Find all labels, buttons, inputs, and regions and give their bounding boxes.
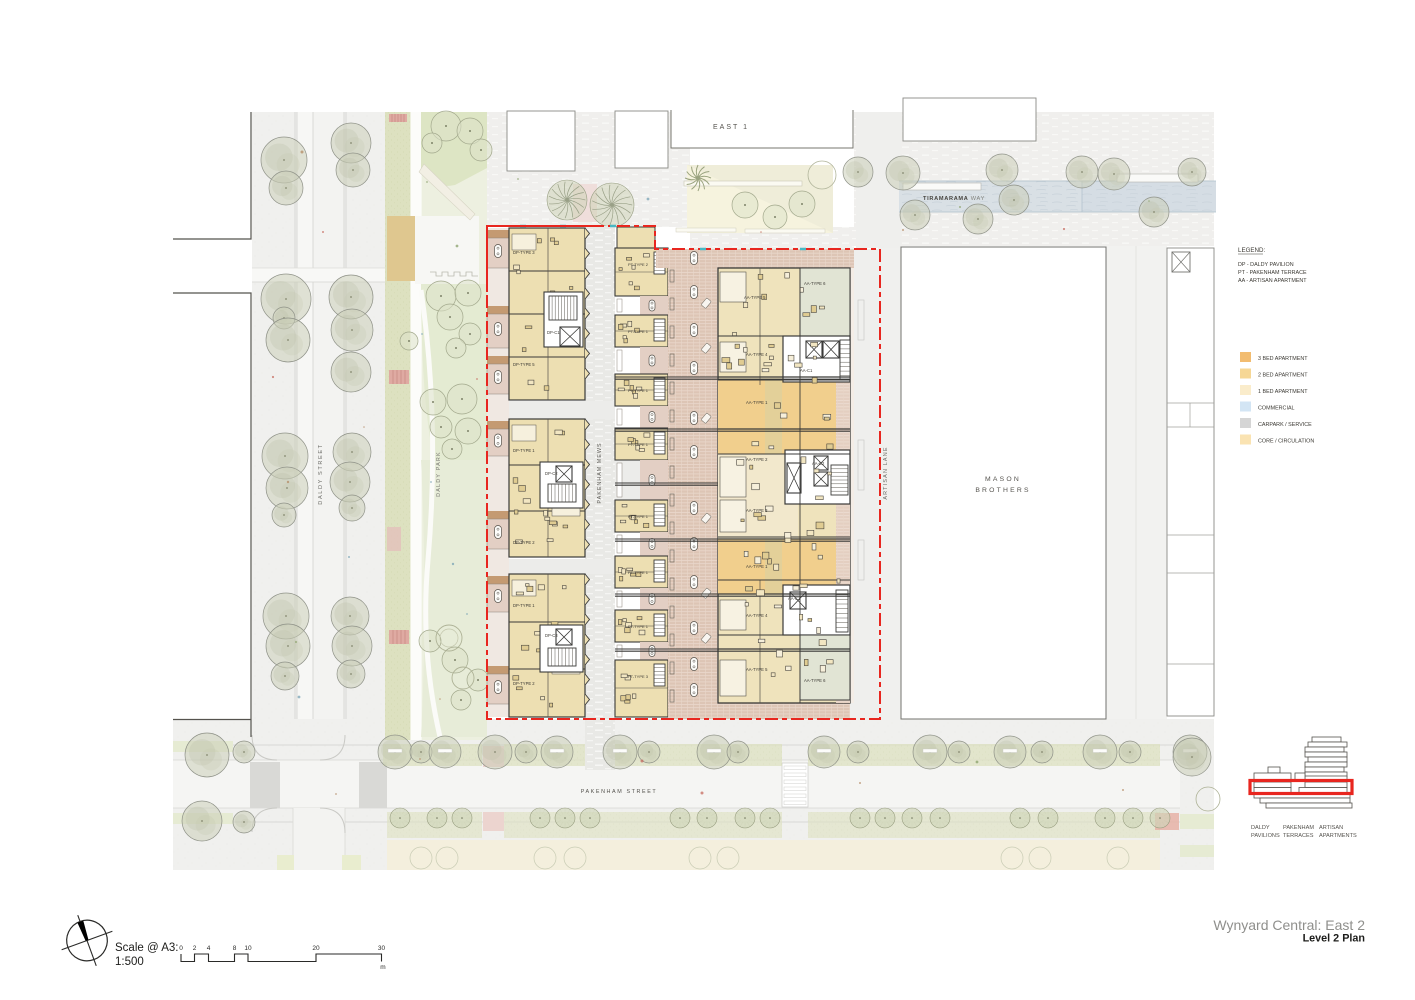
svg-text:AA-TYPE 4: AA-TYPE 4 bbox=[746, 352, 768, 357]
svg-text:2: 2 bbox=[193, 945, 197, 952]
svg-text:DP-C3: DP-C3 bbox=[545, 633, 558, 638]
svg-text:CARPARK / SERVICE: CARPARK / SERVICE bbox=[1258, 422, 1312, 428]
svg-text:DALDY: DALDY bbox=[1251, 825, 1270, 831]
svg-text:MASON: MASON bbox=[985, 476, 1021, 483]
svg-text:PAVILIONS: PAVILIONS bbox=[1251, 833, 1280, 839]
svg-text:AA-TYPE 6: AA-TYPE 6 bbox=[804, 281, 826, 286]
svg-text:PT-TYPE 1: PT-TYPE 1 bbox=[628, 329, 649, 334]
svg-text:DP-C1: DP-C1 bbox=[547, 330, 560, 335]
svg-text:TIRAMARAMA WAY: TIRAMARAMA WAY bbox=[923, 196, 985, 202]
svg-text:PT-TYPE 1: PT-TYPE 1 bbox=[628, 442, 649, 447]
svg-text:EAST 1: EAST 1 bbox=[713, 124, 749, 131]
svg-text:AA-TYPE 5: AA-TYPE 5 bbox=[746, 667, 768, 672]
svg-text:AA-TYPE 1: AA-TYPE 1 bbox=[746, 564, 768, 569]
svg-text:PAKENHAM MEWS: PAKENHAM MEWS bbox=[597, 442, 603, 503]
svg-text:10: 10 bbox=[244, 945, 252, 952]
svg-text:2 BED APARTMENT: 2 BED APARTMENT bbox=[1258, 373, 1308, 379]
svg-text:LEGEND:: LEGEND: bbox=[1238, 247, 1265, 254]
svg-text:AA-C3: AA-C3 bbox=[788, 596, 801, 601]
svg-text:AA-C1: AA-C1 bbox=[800, 368, 813, 373]
svg-text:AA - ARTISAN APARTMENT: AA - ARTISAN APARTMENT bbox=[1238, 278, 1307, 284]
svg-text:PT-TYPE 1: PT-TYPE 1 bbox=[628, 570, 649, 575]
svg-text:AA-TYPE 5: AA-TYPE 5 bbox=[744, 295, 766, 300]
svg-text:PT-TYPE 1: PT-TYPE 1 bbox=[628, 514, 649, 519]
svg-text:0: 0 bbox=[179, 945, 183, 952]
svg-text:3 BED APARTMENT: 3 BED APARTMENT bbox=[1258, 356, 1308, 362]
svg-text:DP-TYPE 2: DP-TYPE 2 bbox=[513, 681, 535, 686]
svg-text:DALDY PARK: DALDY PARK bbox=[436, 451, 442, 497]
svg-text:AA-TYPE 1: AA-TYPE 1 bbox=[746, 400, 768, 405]
svg-text:4: 4 bbox=[207, 945, 211, 952]
svg-text:Wynyard Central: East 2: Wynyard Central: East 2 bbox=[1213, 917, 1365, 933]
svg-text:m: m bbox=[380, 964, 385, 971]
svg-text:AA-TYPE 6: AA-TYPE 6 bbox=[804, 678, 826, 683]
svg-text:Scale @ A3:: Scale @ A3: bbox=[115, 942, 178, 954]
svg-text:DP-TYPE 3: DP-TYPE 3 bbox=[513, 250, 535, 255]
svg-text:20: 20 bbox=[312, 945, 320, 952]
svg-text:1 BED APARTMENT: 1 BED APARTMENT bbox=[1258, 389, 1308, 395]
svg-text:DP-C2: DP-C2 bbox=[545, 471, 558, 476]
svg-text:8: 8 bbox=[233, 945, 237, 952]
svg-text:AA-TYPE 4: AA-TYPE 4 bbox=[746, 613, 768, 618]
svg-text:DP-TYPE 1: DP-TYPE 1 bbox=[513, 448, 535, 453]
svg-text:1:500: 1:500 bbox=[115, 956, 144, 968]
svg-text:PAKENHAM STREET: PAKENHAM STREET bbox=[581, 789, 658, 795]
svg-text:ARTISAN: ARTISAN bbox=[1319, 825, 1343, 831]
svg-text:AA-TYPE 2: AA-TYPE 2 bbox=[746, 457, 768, 462]
svg-text:CORE / CIRCULATION: CORE / CIRCULATION bbox=[1258, 439, 1314, 445]
svg-text:PT-TYPE 2: PT-TYPE 2 bbox=[628, 262, 649, 267]
svg-text:PT-TYPE 1: PT-TYPE 1 bbox=[628, 624, 649, 629]
svg-text:DP-TYPE 5: DP-TYPE 5 bbox=[513, 362, 535, 367]
svg-text:Level 2 Plan: Level 2 Plan bbox=[1303, 933, 1365, 945]
svg-text:PAKENHAM: PAKENHAM bbox=[1283, 825, 1314, 831]
svg-text:TERRACES: TERRACES bbox=[1283, 833, 1314, 839]
svg-text:AA-C2: AA-C2 bbox=[812, 461, 825, 466]
svg-text:DALDY STREET: DALDY STREET bbox=[318, 443, 324, 504]
svg-text:PT - PAKENHAM TERRACE: PT - PAKENHAM TERRACE bbox=[1238, 270, 1307, 276]
svg-text:COMMERCIAL: COMMERCIAL bbox=[1258, 406, 1295, 412]
svg-text:DP - DALDY PAVILION: DP - DALDY PAVILION bbox=[1238, 262, 1294, 268]
svg-text:DP-TYPE 2: DP-TYPE 2 bbox=[513, 540, 535, 545]
svg-text:30: 30 bbox=[378, 945, 386, 952]
svg-text:ARTISAN LANE: ARTISAN LANE bbox=[883, 446, 889, 499]
svg-text:DP-TYPE 1: DP-TYPE 1 bbox=[513, 603, 535, 608]
svg-text:AA-TYPE 3: AA-TYPE 3 bbox=[746, 508, 768, 513]
svg-text:PT-TYPE 3: PT-TYPE 3 bbox=[628, 674, 649, 679]
svg-text:APARTMENTS: APARTMENTS bbox=[1319, 833, 1357, 839]
svg-text:BROTHERS: BROTHERS bbox=[975, 487, 1030, 494]
svg-text:PT-TYPE 1: PT-TYPE 1 bbox=[628, 388, 649, 393]
